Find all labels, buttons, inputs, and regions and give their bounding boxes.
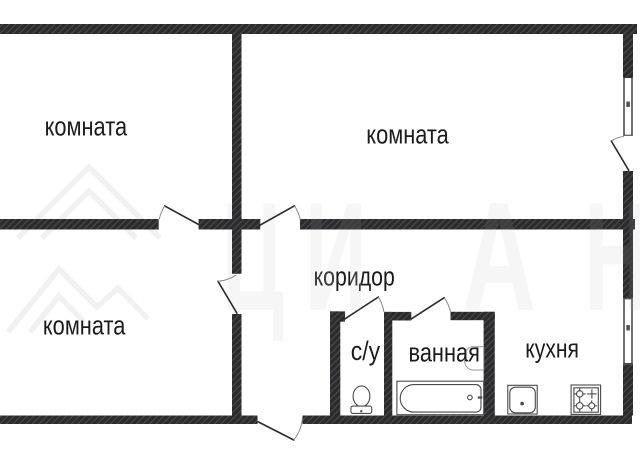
svg-text:Н: Н bbox=[584, 170, 640, 343]
svg-text:А: А bbox=[462, 170, 536, 343]
svg-text:комната: комната bbox=[45, 111, 128, 141]
svg-text:И: И bbox=[305, 170, 367, 343]
svg-text:комната: комната bbox=[366, 120, 449, 150]
svg-text:комната: комната bbox=[43, 310, 126, 340]
svg-text:Ц: Ц bbox=[222, 170, 284, 343]
